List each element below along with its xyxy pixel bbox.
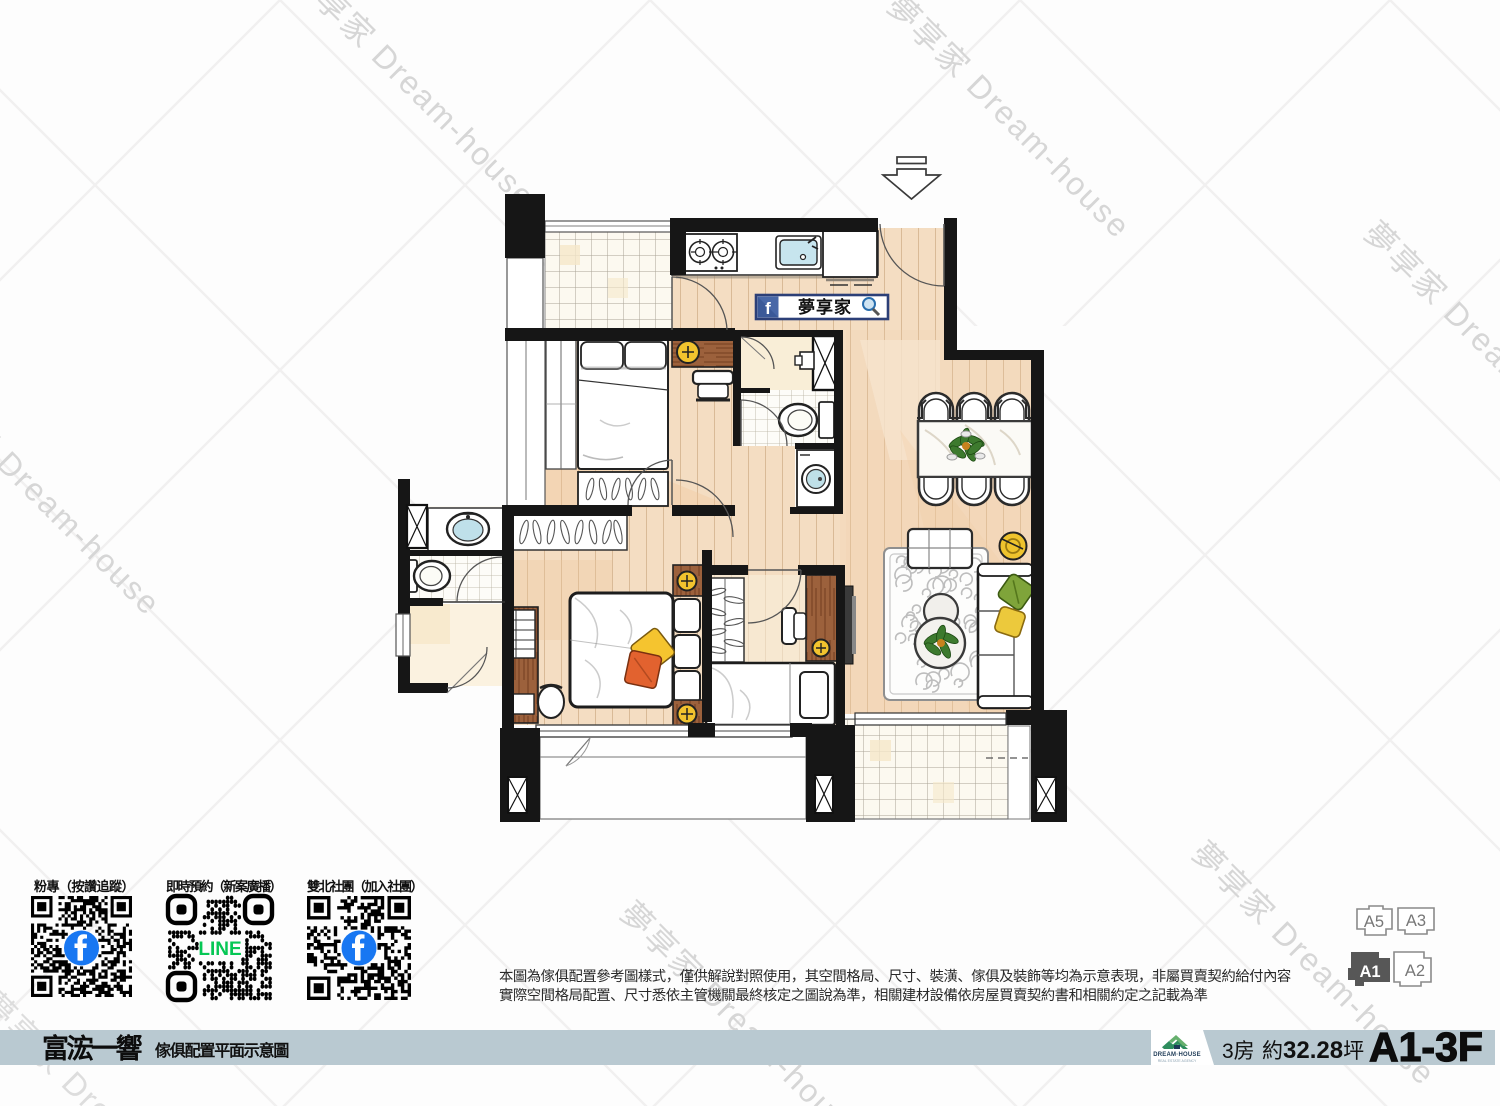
svg-text:粉專（按讚追蹤）: 粉專（按讚追蹤） <box>34 879 134 894</box>
svg-text:A5: A5 <box>1364 913 1384 931</box>
svg-text:A1-3F: A1-3F <box>1369 1024 1483 1070</box>
svg-text:A3: A3 <box>1406 912 1426 930</box>
svg-text:A1: A1 <box>1359 963 1380 981</box>
svg-text:3房: 3房 <box>1222 1040 1255 1063</box>
svg-text:DREAM·HOUSE: DREAM·HOUSE <box>1153 1052 1201 1058</box>
svg-text:即時預約（新案廣播）: 即時預約（新案廣播） <box>166 879 281 894</box>
svg-text:f: f <box>765 299 771 318</box>
svg-text:富浤一響: 富浤一響 <box>42 1033 142 1064</box>
svg-text:A2: A2 <box>1405 962 1425 980</box>
svg-text:約32.28坪: 約32.28坪 <box>1262 1037 1364 1064</box>
svg-text:本圖為傢俱配置參考圖樣式，僅供解說對照使用，其空間格局、尺寸: 本圖為傢俱配置參考圖樣式，僅供解說對照使用，其空間格局、尺寸、裝潢、傢俱及裝飾等… <box>499 967 1291 985</box>
svg-text:雙北社團（加入社團）: 雙北社團（加入社團） <box>307 879 422 894</box>
svg-text:傢俱配置平面示意圖: 傢俱配置平面示意圖 <box>155 1041 289 1060</box>
svg-text:REAL ESTATE AGENCY: REAL ESTATE AGENCY <box>1158 1059 1197 1063</box>
svg-text:LINE: LINE <box>198 939 241 960</box>
svg-text:夢享家: 夢享家 <box>798 297 852 317</box>
svg-text:實際空間格局配置、尺寸悉依主管機關最終核定之圖說為準，相關建: 實際空間格局配置、尺寸悉依主管機關最終核定之圖說為準，相關建材設備依房屋買賣契約… <box>499 986 1208 1004</box>
